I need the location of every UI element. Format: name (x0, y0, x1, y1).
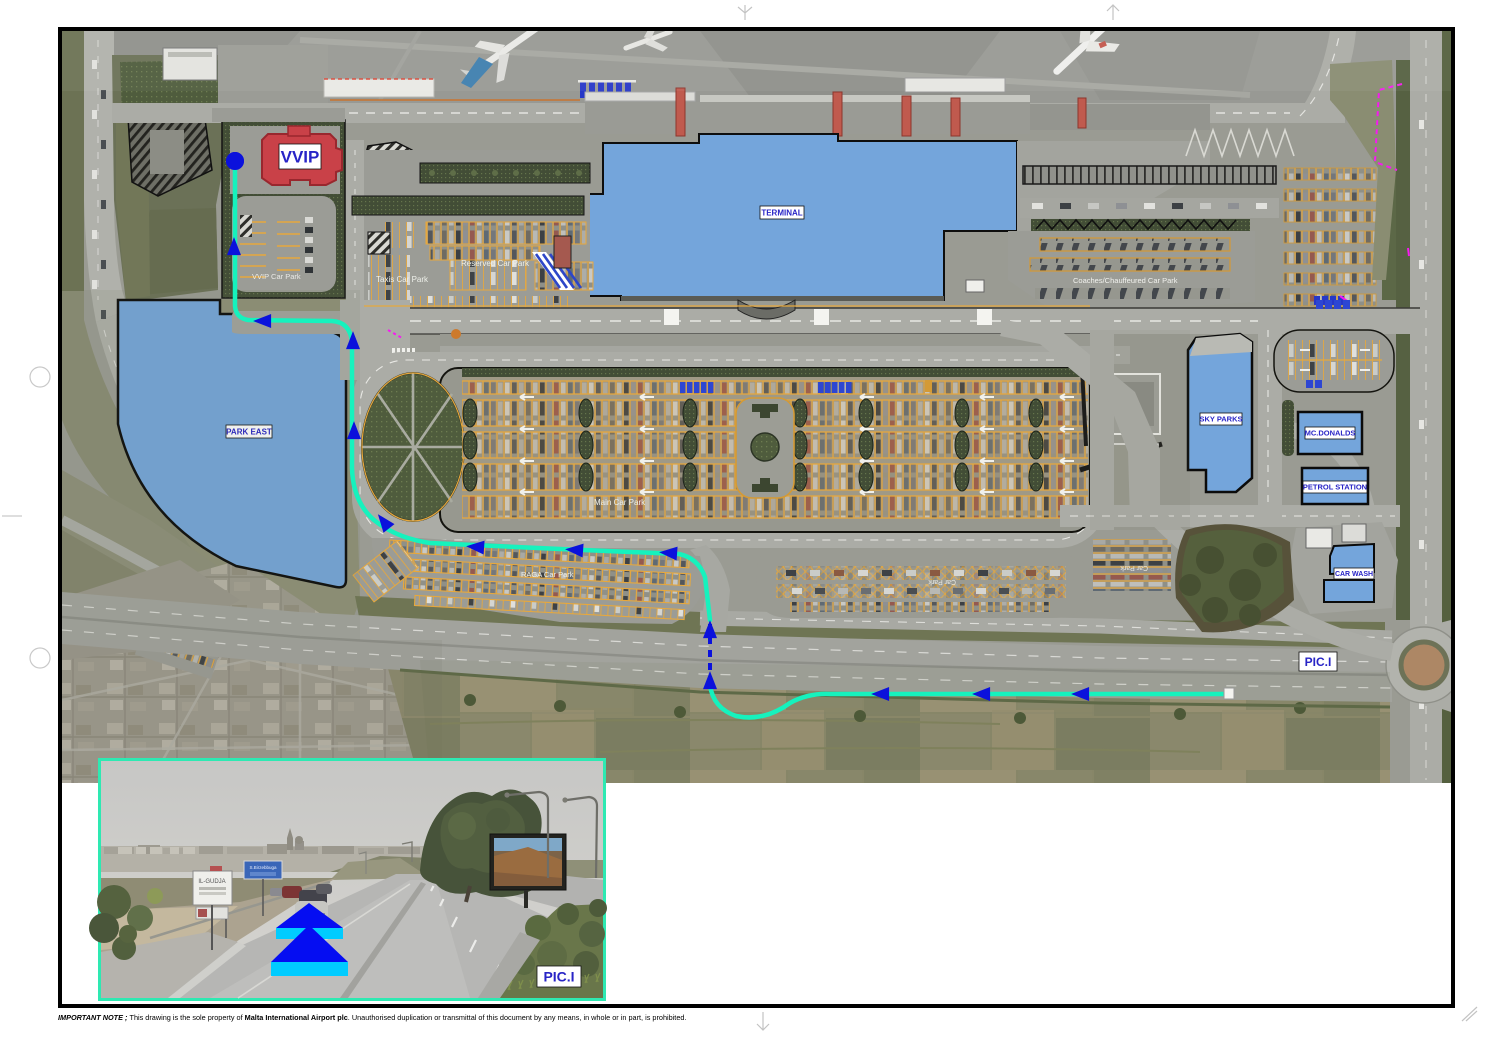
svg-text:PIC.I: PIC.I (543, 969, 574, 985)
svg-text:Car Park: Car Park (1120, 564, 1148, 571)
svg-text:IL-GUDJA: IL-GUDJA (198, 879, 225, 885)
svg-text:Reserved Car Park: Reserved Car Park (461, 259, 530, 268)
svg-text:Coaches/Chauffeured Car Park: Coaches/Chauffeured Car Park (1073, 276, 1178, 285)
svg-text:MC.DONALDS: MC.DONALDS (1305, 429, 1356, 438)
svg-text:PETROL STATION: PETROL STATION (1303, 483, 1367, 492)
svg-text:Taxis Car Park: Taxis Car Park (376, 275, 429, 284)
svg-text:RAGA Car Park: RAGA Car Park (521, 570, 574, 579)
svg-text:VVIP: VVIP (281, 148, 320, 167)
svg-text:IMPORTANT NOTE ; This drawing: IMPORTANT NOTE ; This drawing is the sol… (58, 1013, 686, 1022)
svg-text:PIC.I: PIC.I (1305, 655, 1332, 669)
svg-text:TERMINAL: TERMINAL (761, 208, 802, 217)
svg-text:Car Park: Car Park (928, 578, 956, 585)
svg-text:S.Birzebbuga: S.Birzebbuga (249, 865, 277, 870)
svg-text:SKY PARKS: SKY PARKS (1199, 415, 1242, 424)
svg-text:CAR WASH: CAR WASH (1335, 571, 1373, 578)
svg-text:Main Car Park: Main Car Park (594, 498, 646, 507)
svg-text:VVIP Car Park: VVIP Car Park (252, 272, 301, 281)
